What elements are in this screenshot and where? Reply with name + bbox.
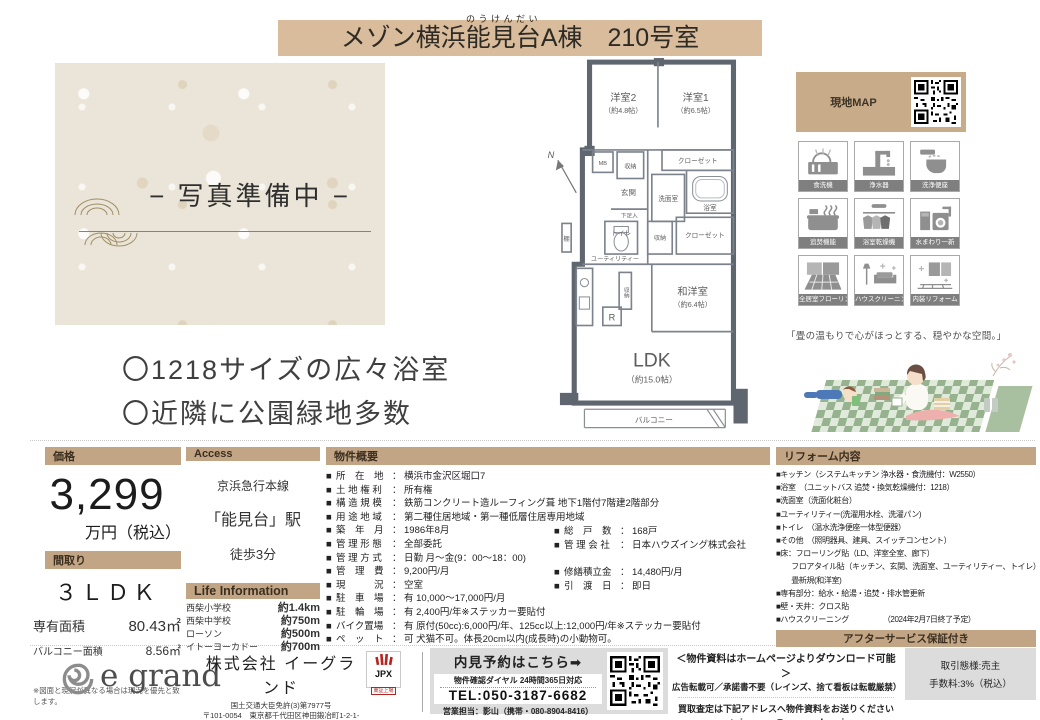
room-label-washitsu: 和洋室 — [677, 285, 708, 298]
life-list: 西柴小学校約1.4km 西柴中学校約750m ローソン約500m イトーヨーカド… — [186, 602, 320, 654]
equipment-tile: 洗浄便座 — [910, 141, 960, 192]
room-label-shelf: 棚 — [564, 235, 570, 243]
life-label: ローソン — [186, 628, 222, 641]
deal-fee: 手数料:3%（税込） — [929, 676, 1012, 690]
life-label: 西柴中学校 — [186, 615, 231, 628]
deal-type: 取引態様:売主 — [941, 658, 1001, 672]
phone-number: TEL:050-3187-6682 — [434, 688, 602, 703]
reservation-box: 内見予約はこちら➡ 物件確認ダイヤル 24時間365日対応 TEL:050-31… — [430, 648, 668, 714]
equipment-label: 洗浄便座 — [911, 180, 959, 191]
life-header: Life Information — [186, 583, 320, 599]
title-ruby-base: 能見台 — [466, 24, 541, 52]
room-label-utility: ユーティリティー — [591, 256, 639, 263]
balcony-label: バルコニー面積 — [33, 643, 103, 658]
room-label-mb: MB — [599, 161, 608, 167]
madori-value: ３ＬＤＫ — [33, 575, 181, 607]
quote-text: 「畳の温もりで心がほっとする、穏やかな空間。」 — [786, 328, 1038, 342]
room-label-genkan: 玄関 — [621, 187, 636, 197]
overview-right-list: ■総 戸 数：168戸 ■管 理 会 社：日本ハウズイング株式会社 ■修繕積立金… — [554, 525, 746, 593]
price-header: 価格 — [45, 447, 181, 465]
title-suffix: A棟 210号室 — [541, 18, 699, 54]
reservation-title: 内見予約はこちら➡ — [430, 648, 606, 671]
equipment-grid: 食洗機 浄水器 洗浄便座 追焚機能 浴室乾燥機 水まわり一新 全居室フローリング — [798, 141, 960, 306]
equipment-tile: 浴室乾燥機 — [854, 198, 904, 249]
photo-placeholder: − 写真準備中 − — [55, 63, 385, 325]
feature-line-2: 〇近隣に公園緑地多数 — [122, 392, 562, 431]
map-qr-code — [911, 77, 961, 127]
equipment-label: ハウスクリーニング — [855, 294, 903, 305]
equipment-label: 浴室乾燥機 — [855, 237, 903, 248]
equipment-tile: 食洗機 — [798, 141, 848, 192]
room-label-closet2: クローゼット — [685, 231, 725, 240]
room-label-closet1: クローゼット — [678, 156, 718, 165]
equipment-tile: 追焚機能 — [798, 198, 848, 249]
room-label-bath: 浴室 — [703, 203, 717, 212]
water-purifier-icon — [858, 144, 900, 180]
equipment-label: 食洗機 — [799, 180, 847, 191]
feature-line-1: 〇1218サイズの広々浴室 — [122, 348, 562, 387]
room-size-bed2: （約4.8帖） — [604, 106, 642, 115]
separator — [678, 697, 894, 698]
interior-reform-icon — [914, 258, 956, 294]
flooring-icon — [802, 258, 844, 294]
access-header: Access — [186, 447, 320, 461]
price-unit: 万円（税込） — [33, 519, 181, 543]
balcony-value: 8.56㎡ — [146, 642, 181, 659]
company-license: 国土交通大臣免許(3)第7977号 — [200, 701, 362, 711]
equipment-tile: ハウスクリーニング — [854, 255, 904, 306]
jpx-logo: JPX 東証上場 — [366, 651, 401, 688]
company-name: 株式会社 イーグランド — [200, 650, 362, 698]
separator — [30, 440, 1035, 441]
room-label-balcony: バルコニー — [635, 415, 673, 424]
house-cleaning-icon — [858, 258, 900, 294]
room-label-shoebox: 下足入 — [621, 212, 638, 219]
equipment-label: 内装リフォーム — [911, 294, 959, 305]
walk-time: 徒歩3分 — [186, 544, 320, 563]
page-title: メゾン横浜能見台のうけんだいA棟 210号室 — [278, 20, 762, 56]
room-label-fridge: R — [609, 312, 616, 322]
room-label-bed1: 洋室1 — [683, 91, 709, 104]
access-panel: Access 京浜急行本線 「能見台」駅 徒歩3分 Life Informati… — [186, 447, 320, 654]
station: 「能見台」駅 — [186, 506, 320, 530]
dishwasher-icon — [802, 144, 844, 180]
floor-plan: N 洋室2 （約4.8帖） 洋室1 （約6.5帖） クローゼット MB 収納 玄… — [533, 56, 789, 448]
rail-line: 京浜急行本線 — [186, 477, 320, 494]
dial-label: 物件確認ダイヤル 24時間365日対応 — [440, 675, 596, 688]
bath-reheat-icon — [802, 201, 844, 237]
notice-line3: 買取査定は下記アドレスへ物件資料をお送りください — [672, 702, 900, 715]
room-label-senmen: 洗面室 — [658, 194, 678, 203]
company-address: 〒101-0054 東京都千代田区神田鍛冶町1-2-1-7F — [200, 711, 362, 720]
life-label: 西柴小学校 — [186, 602, 231, 615]
jpx-text: JPX — [367, 670, 400, 679]
equipment-tile: 全居室フローリング — [798, 255, 848, 306]
map-label: 現地MAP — [796, 94, 911, 110]
madori-header: 間取り — [45, 551, 181, 569]
compass-label: N — [548, 150, 555, 160]
equipment-label: 全居室フローリング — [799, 294, 847, 305]
equipment-tile: 内装リフォーム — [910, 255, 960, 306]
water-renewal-icon — [914, 201, 956, 237]
reform-panel: リフォーム内容 ■キッチン（システムキッチン 浄水器・食洗機付：W2550） ■… — [776, 447, 1036, 663]
reform-list: ■キッチン（システムキッチン 浄水器・食洗機付：W2550） ■浴室 （ユニット… — [776, 468, 1036, 626]
life-value: 約500m — [281, 628, 320, 641]
jpx-bars-icon — [374, 653, 394, 665]
room-label-toilet: トイレ — [611, 231, 631, 238]
room-label-ldk: LDK — [633, 349, 671, 371]
flyer-page: メゾン横浜能見台のうけんだいA棟 210号室 − 写真準備中 − 〇1218サイ… — [0, 0, 1040, 720]
room-size-bed1: （約6.5帖） — [677, 106, 715, 115]
room-label-bed2: 洋室2 — [610, 91, 636, 104]
room-label-storage1: 収納 — [624, 162, 636, 170]
title-furigana: のうけんだい — [466, 14, 541, 24]
room-label-storage3: 収納 — [622, 287, 629, 300]
compass-icon: N — [548, 150, 577, 193]
jpx-subtext: 東証上場 — [371, 687, 395, 695]
notice-line1: ＜物件資料はホームページよりダウンロード可能＞ — [672, 650, 900, 680]
area-value: 80.43㎡ — [128, 615, 181, 636]
equipment-label: 追焚機能 — [799, 237, 847, 248]
life-value: 約750m — [281, 615, 320, 628]
life-value: 約1.4km — [278, 602, 320, 615]
area-label: 専有面積 — [33, 616, 85, 635]
room-label-storage2: 収納 — [654, 234, 666, 242]
room-size-ldk: （約15.0帖） — [626, 374, 677, 385]
equipment-label: 浄水器 — [855, 180, 903, 191]
company-block: 株式会社 イーグランド 国土交通大臣免許(3)第7977号 〒101-0054 … — [200, 650, 362, 720]
after-service-bar: アフターサービス保証付き — [776, 630, 1036, 647]
overview-header: 物件概要 — [326, 447, 770, 465]
equipment-label: 水まわり一新 — [911, 237, 959, 248]
tatami-illustration — [788, 346, 1038, 438]
washlet-icon — [914, 144, 956, 180]
notice-block: ＜物件資料はホームページよりダウンロード可能＞ 広告転載可／承諾書不要（レインズ… — [672, 650, 900, 720]
dial-box: 物件確認ダイヤル 24時間365日対応 TEL:050-3187-6682 — [434, 674, 602, 704]
footer-divider — [422, 652, 423, 712]
room-size-washitsu: （約6.4帖） — [673, 300, 711, 309]
bathroom-dryer-icon — [858, 201, 900, 237]
egrand-logo-icon — [56, 658, 100, 700]
photo-placeholder-text: − 写真準備中 − — [149, 176, 351, 213]
reform-header: リフォーム内容 — [776, 447, 1036, 465]
equipment-tile: 水まわり一新 — [910, 198, 960, 249]
notice-line2: 広告転載可／承諾書不要（レインズ、捨て看板は転載厳禁） — [672, 681, 900, 693]
sales-contact: 営業担当：影山（携帯・080-8904-8416） — [430, 706, 606, 717]
equipment-tile: 浄水器 — [854, 141, 904, 192]
deal-terms-box: 取引態様:売主 手数料:3%（税込） — [905, 648, 1036, 700]
site-map-box: 現地MAP — [796, 72, 966, 132]
overview-panel: 物件概要 ■所 在 地：横浜市金沢区堀口7 ■土 地 権 利：所有権 ■構 造 … — [326, 447, 770, 647]
reservation-qr-code — [607, 652, 663, 710]
title-prefix: メゾン横浜 — [341, 18, 466, 54]
price-value: 3,299 — [33, 473, 181, 517]
